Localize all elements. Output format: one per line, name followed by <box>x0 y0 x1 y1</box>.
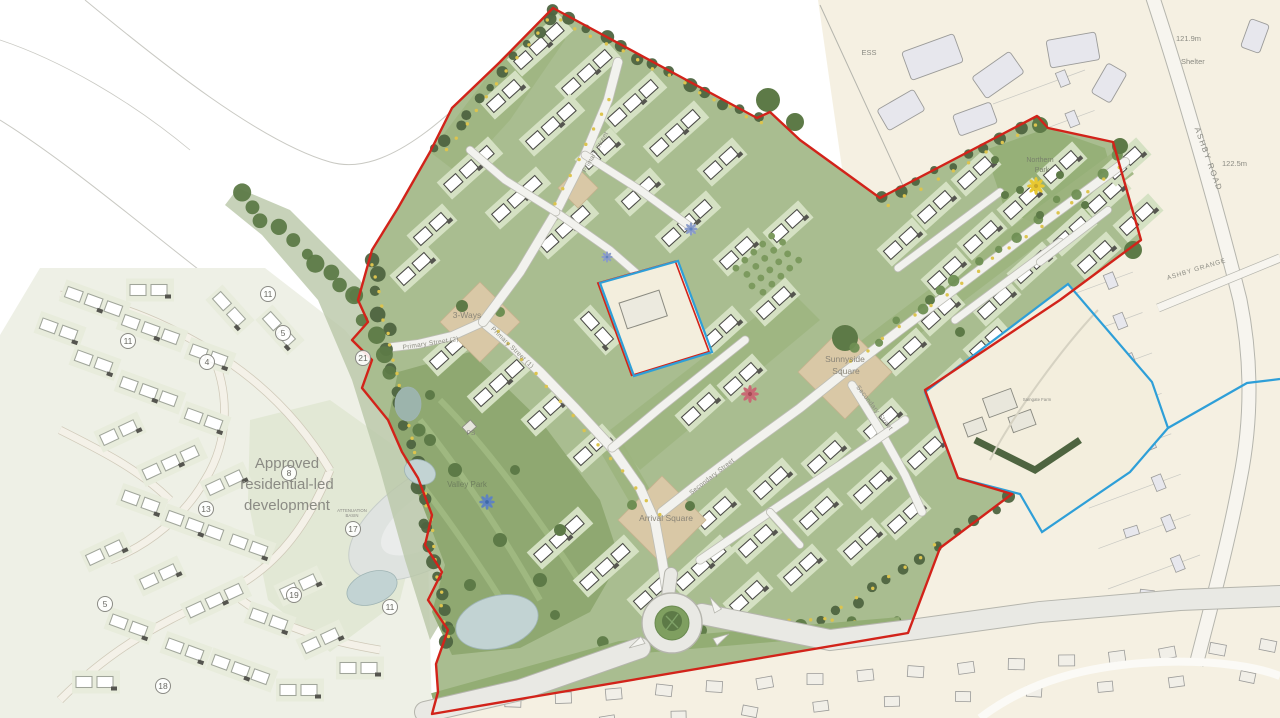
flower-icon <box>689 227 692 230</box>
existing-house <box>706 681 723 693</box>
street-tree-dot <box>407 424 410 427</box>
existing-house <box>756 676 774 690</box>
plot-number-text: 4 <box>205 357 210 367</box>
tree-icon <box>412 424 425 437</box>
square-tree <box>685 501 695 511</box>
tree-icon <box>398 420 409 431</box>
plot-number-marker: 4 <box>200 355 215 370</box>
street-tree-dot <box>377 290 380 293</box>
sunnyside-square-label-2: Square <box>832 366 860 376</box>
street-tree-dot <box>381 318 384 321</box>
street-tree-dot <box>596 443 599 446</box>
tree-icon <box>286 233 300 247</box>
spot-height-121: 121.9m <box>1176 34 1201 43</box>
tree-icon <box>438 135 450 147</box>
street-tree-dot <box>887 204 890 207</box>
tree-icon <box>456 120 466 130</box>
tree-icon <box>1001 191 1009 199</box>
street-tree-dot <box>534 372 537 375</box>
street-tree-dot <box>440 590 443 593</box>
tree-icon <box>1056 171 1064 179</box>
tree-icon <box>936 285 946 295</box>
flower-icon <box>748 392 752 396</box>
street-tree-dot <box>919 188 922 191</box>
plot-number-text: 19 <box>289 590 299 600</box>
garage <box>375 673 381 677</box>
tree-icon <box>1081 201 1089 209</box>
street-tree-dot <box>887 575 890 578</box>
street-tree-dot <box>1016 134 1019 137</box>
street-tree-dot <box>413 451 416 454</box>
sunnyside-square-label-1: Sunnyside <box>825 354 865 364</box>
tree-icon <box>975 257 983 265</box>
house <box>97 677 113 688</box>
street-tree-dot <box>903 194 906 197</box>
street-tree-dot <box>1024 235 1027 238</box>
tree-icon <box>914 554 925 565</box>
tree-icon <box>382 366 396 380</box>
approved-dev-label-1: Approved <box>255 455 319 472</box>
street-tree-dot <box>395 372 398 375</box>
existing-house <box>957 661 974 674</box>
tree-icon <box>955 327 965 337</box>
street-tree-dot <box>485 95 488 98</box>
street-tree-dot <box>1070 201 1073 204</box>
plot-number-text: 11 <box>264 289 273 299</box>
street-tree-dot <box>898 325 901 328</box>
existing-house <box>1097 681 1113 692</box>
tree-icon <box>376 346 393 363</box>
street-tree-dot <box>410 437 413 440</box>
street-tree-dot <box>855 596 858 599</box>
existing-house <box>807 674 823 685</box>
existing-house <box>671 711 686 718</box>
street-tree-dot <box>881 337 884 340</box>
plot-number-text: 11 <box>124 336 133 346</box>
tree-icon <box>849 342 859 352</box>
street-tree-dot <box>636 58 639 61</box>
house <box>130 285 146 296</box>
tree-icon <box>533 573 547 587</box>
street-tree-dot <box>571 414 574 417</box>
tree-icon <box>464 579 476 591</box>
street-tree-dot <box>582 429 585 432</box>
valley-park-label: Valley Park <box>447 480 488 489</box>
approved-dev-label-3: development <box>244 497 331 514</box>
pumping-station-label: PS <box>467 430 476 437</box>
street-tree-dot <box>515 56 518 59</box>
tree-icon <box>892 317 900 325</box>
street-tree-dot <box>569 174 572 177</box>
plot-number-marker: 18 <box>156 679 171 694</box>
attenuation-basin-label-2: BASIN <box>346 513 359 518</box>
street-tree-dot <box>553 202 556 205</box>
tree-icon <box>436 588 448 600</box>
street-tree-dot <box>913 313 916 316</box>
tree-icon <box>853 598 864 609</box>
tree-icon <box>493 533 507 547</box>
plot-number-marker: 5 <box>98 597 113 612</box>
plot-number-marker: 19 <box>287 588 302 603</box>
garage <box>165 295 171 299</box>
street-tree-dot <box>398 384 401 387</box>
existing-house <box>955 691 970 701</box>
house <box>76 677 92 688</box>
street-tree-dot <box>374 275 377 278</box>
house <box>361 663 377 674</box>
street-tree-dot <box>937 177 940 180</box>
plot-number-marker: 13 <box>199 502 214 517</box>
ess-label: ESS <box>861 48 876 57</box>
street-tree-dot <box>1102 177 1105 180</box>
northern-park-label-1: Northern <box>1026 157 1053 164</box>
street-tree-dot <box>831 618 834 621</box>
tree-icon <box>448 463 462 477</box>
street-tree-dot <box>809 618 812 621</box>
flower-icon <box>606 256 609 259</box>
arrival-square-label: Arrival Square <box>639 513 693 523</box>
street-tree-dot <box>945 293 948 296</box>
street-tree-dot <box>712 98 715 101</box>
tree-icon <box>816 616 825 625</box>
tree-icon <box>253 213 268 228</box>
street-tree-dot <box>577 158 580 161</box>
street-tree-dot <box>600 113 603 116</box>
street-tree-dot <box>475 109 478 112</box>
street-tree-dot <box>536 31 539 34</box>
tree-icon <box>461 110 471 120</box>
flower-icon <box>485 500 489 504</box>
tree-icon <box>324 265 340 281</box>
house <box>301 685 317 696</box>
street-tree-dot <box>645 499 648 502</box>
plot-number-marker: 17 <box>346 522 361 537</box>
street-tree-dot <box>559 400 562 403</box>
street-tree-dot <box>745 115 748 118</box>
street-tree-dot <box>432 545 435 548</box>
existing-house <box>857 669 874 682</box>
street-tree-dot <box>634 486 637 489</box>
existing-house <box>1008 658 1024 669</box>
plot-number-marker: 11 <box>121 334 136 349</box>
street-tree-dot <box>967 161 970 164</box>
street-tree-dot <box>445 148 448 151</box>
tree-icon <box>306 255 324 273</box>
street-tree-dot <box>903 566 906 569</box>
street-tree-dot <box>584 143 587 146</box>
street-tree-dot <box>388 343 391 346</box>
street-tree-dot <box>823 617 826 620</box>
street-tree-dot <box>866 349 869 352</box>
tree-icon <box>233 183 251 201</box>
street-tree-dot <box>919 556 922 559</box>
existing-house <box>605 688 622 700</box>
tree-icon <box>1071 189 1081 199</box>
tree-icon <box>332 278 347 293</box>
plot-number-marker: 11 <box>261 287 276 302</box>
tree-icon <box>510 465 520 475</box>
street-tree-dot <box>991 256 994 259</box>
existing-house <box>813 700 829 712</box>
farm-label: Samgate Farm <box>1023 397 1052 402</box>
garage <box>111 687 117 691</box>
street-tree-dot <box>984 150 987 153</box>
street-tree-dot <box>559 18 562 21</box>
tree-icon <box>831 606 840 615</box>
tree-icon <box>756 88 780 112</box>
square-tree <box>627 500 637 510</box>
plot-number-text: 5 <box>281 328 286 338</box>
street-tree-dot <box>370 263 373 266</box>
tree-icon <box>550 610 560 620</box>
street-tree-dot <box>668 73 671 76</box>
street-tree-dot <box>1007 246 1010 249</box>
street-tree-dot <box>495 82 498 85</box>
plot-number-text: 13 <box>201 504 211 514</box>
street-tree-dot <box>504 69 507 72</box>
street-tree-dot <box>871 587 874 590</box>
plot-number-text: 18 <box>158 681 168 691</box>
field-boundary <box>0 40 190 150</box>
street-tree-dot <box>592 127 595 130</box>
tree-icon <box>995 246 1002 253</box>
tree-icon <box>534 27 546 39</box>
street-tree-dot <box>760 121 763 124</box>
existing-house <box>1059 655 1075 666</box>
existing-house <box>907 666 924 678</box>
street-tree-dot <box>605 42 608 45</box>
tree-icon <box>1036 211 1044 219</box>
masterplan: 11115421813171911518 Approved residentia… <box>0 0 1280 718</box>
tree-icon <box>406 439 416 449</box>
existing-house <box>1209 642 1227 656</box>
street-tree-dot <box>527 43 530 46</box>
tree-icon <box>918 304 929 315</box>
tree-icon <box>424 434 436 446</box>
street-tree-dot <box>589 35 592 38</box>
tree-icon <box>991 156 999 164</box>
tree-icon <box>925 295 935 305</box>
spot-height-122: 122.5m <box>1222 159 1247 168</box>
approved-dev-label-2: residential-led <box>240 476 333 493</box>
existing-house <box>1168 676 1184 688</box>
street-tree-dot <box>573 27 576 30</box>
plot-number-marker: 21 <box>356 351 371 366</box>
plot-number-marker: 11 <box>383 600 398 615</box>
street-tree-dot <box>546 18 549 21</box>
street-tree-dot <box>545 385 548 388</box>
street-tree-dot <box>607 98 610 101</box>
street-tree-dot <box>391 358 394 361</box>
street-tree-dot <box>960 282 963 285</box>
plot-number-text: 21 <box>358 353 368 363</box>
plot-number-text: 11 <box>386 602 395 612</box>
tree-icon <box>425 390 435 400</box>
tree-icon <box>1016 186 1024 194</box>
street-tree-dot <box>386 332 389 335</box>
house <box>340 663 356 674</box>
street-tree-dot <box>929 304 932 307</box>
existing-house <box>884 696 899 707</box>
tree-icon <box>948 275 960 287</box>
street-tree-dot <box>839 606 842 609</box>
street-tree-dot <box>380 304 383 307</box>
existing-house <box>655 684 672 697</box>
tree-icon <box>368 326 385 343</box>
street-tree-dot <box>440 604 443 607</box>
garage <box>315 695 321 699</box>
house <box>280 685 296 696</box>
street-tree-dot <box>431 529 434 532</box>
street-tree-dot <box>977 270 980 273</box>
tree-icon <box>383 323 396 336</box>
street-tree-dot <box>1001 141 1004 144</box>
tree-icon <box>1011 233 1021 243</box>
tree-icon <box>475 93 485 103</box>
house <box>151 285 167 296</box>
tree-icon <box>246 200 260 214</box>
street-tree-dot <box>622 49 625 52</box>
northern-park-label-2: Park <box>1035 167 1050 174</box>
street-tree-dot <box>651 67 654 70</box>
tree-icon <box>898 564 909 575</box>
tree-icon <box>486 84 494 92</box>
street-tree-dot <box>698 91 701 94</box>
street-tree-dot <box>683 81 686 84</box>
street-tree-dot <box>609 457 612 460</box>
street-tree-dot <box>952 169 955 172</box>
pond <box>395 387 421 421</box>
plot-number-text: 17 <box>348 524 358 534</box>
street-tree-dot <box>466 122 469 125</box>
tree-icon <box>554 524 566 536</box>
street-tree-dot <box>1034 123 1037 126</box>
street-tree-dot <box>1086 190 1089 193</box>
plot-number-text: 5 <box>103 599 108 609</box>
street-tree-dot <box>561 187 564 190</box>
street-tree-dot <box>455 136 458 139</box>
masterplan-canvas: 11115421813171911518 Approved residentia… <box>0 0 1280 718</box>
tree-icon <box>1053 196 1060 203</box>
tree-icon <box>370 266 386 282</box>
street-tree-dot <box>1040 225 1043 228</box>
shelter-label: Shelter <box>1181 57 1205 66</box>
flower-icon <box>1034 184 1038 188</box>
plot-number-marker: 5 <box>276 326 291 341</box>
three-ways-label: 3-Ways <box>453 310 482 320</box>
tree-icon <box>271 219 287 235</box>
street-tree-dot <box>621 469 624 472</box>
street-tree-dot <box>933 543 936 546</box>
street-tree-dot <box>1056 211 1059 214</box>
